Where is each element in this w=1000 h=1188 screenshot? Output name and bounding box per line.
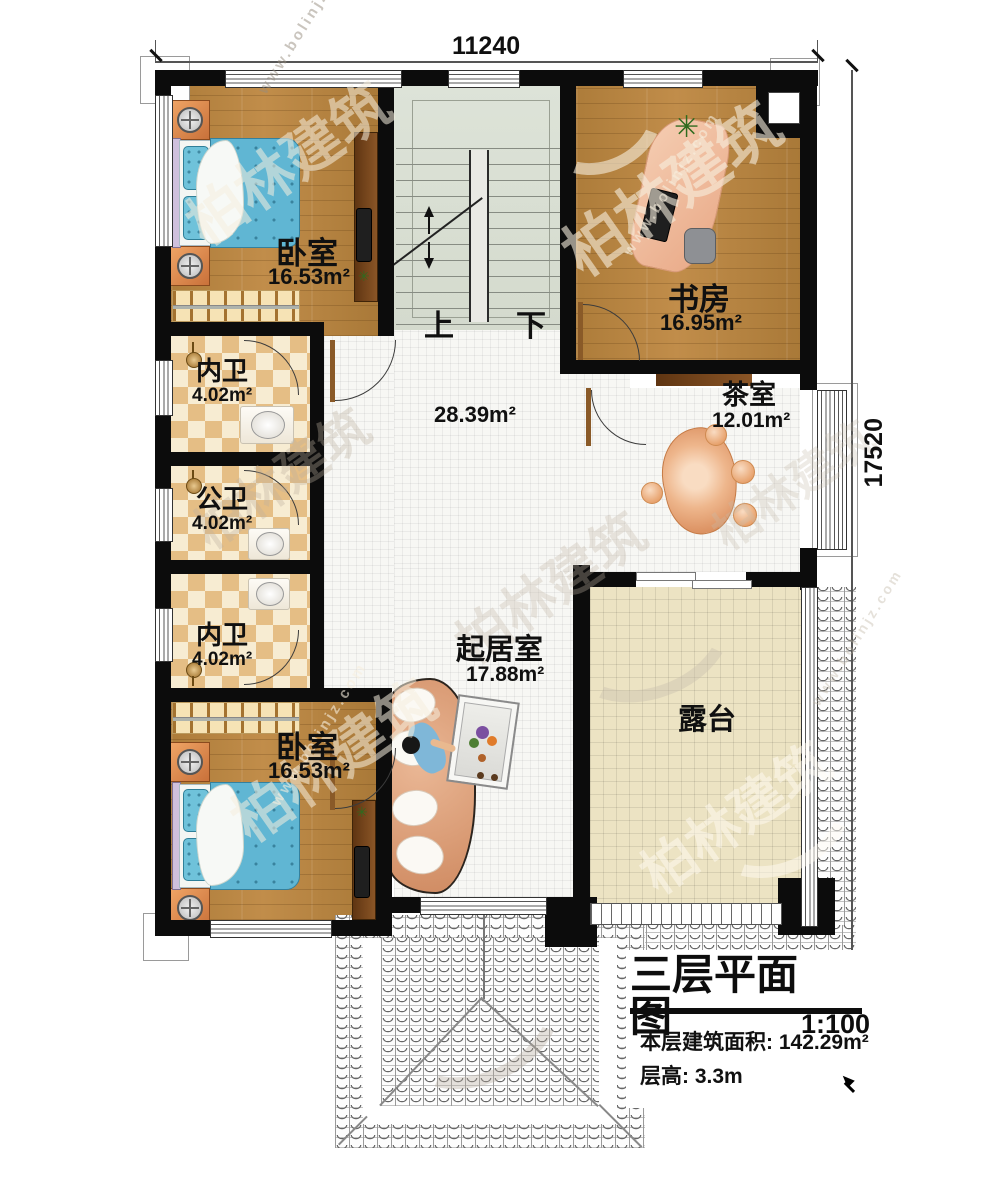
- room-area-bath-bottom: 4.02m²: [192, 650, 252, 669]
- roof-ridge-line: [483, 915, 485, 999]
- room-label-bath-bottom: 内卫: [196, 622, 248, 648]
- sliding-door-panel: [636, 572, 696, 581]
- room-label-bath-top: 内卫: [196, 358, 248, 384]
- wall-segment: [376, 688, 392, 936]
- stair-railing: [469, 150, 489, 322]
- wall-segment: [155, 452, 324, 466]
- room-label-tea: 茶室: [722, 382, 776, 409]
- room-label-terrace: 露台: [678, 706, 736, 735]
- sink-basin: [251, 411, 285, 439]
- wall-segment: [310, 322, 324, 702]
- stool: [733, 503, 757, 527]
- window: [155, 608, 173, 662]
- window: [448, 70, 520, 88]
- wall-segment: [560, 360, 817, 374]
- room-label-bath-middle: 公卫: [196, 486, 248, 512]
- room-label-living: 起居室: [456, 636, 543, 665]
- sink: [248, 528, 290, 560]
- lamp-icon: [177, 253, 203, 279]
- stair-down-label: 下: [516, 312, 546, 342]
- floor-height-label: 层高:: [640, 1065, 689, 1088]
- monitor-icon: [356, 208, 372, 262]
- title-block: 三层平面图1:100 本层建筑面积: 142.29m² 层高: 3.3m: [626, 950, 870, 1108]
- stair-arrow-stem: [428, 242, 430, 258]
- window: [155, 95, 173, 247]
- dimension-top-label: 11240: [452, 34, 520, 59]
- window: [155, 360, 173, 416]
- window: [623, 70, 703, 88]
- flowers: [469, 738, 479, 748]
- plant-icon: ✳: [356, 804, 368, 821]
- wall-segment: [573, 565, 590, 905]
- stool: [731, 460, 755, 484]
- dimension-line-right: [851, 70, 853, 1086]
- wall-segment: [155, 688, 392, 702]
- window: [225, 70, 402, 88]
- shower-stem: [192, 676, 194, 686]
- sink-basin: [256, 582, 284, 606]
- sink-basin: [256, 532, 284, 556]
- title-underline: [630, 1008, 862, 1014]
- chair: [684, 228, 716, 264]
- cursor-arrow: [840, 1074, 860, 1094]
- flowers: [478, 754, 486, 762]
- room-area-bath-middle: 4.02m²: [192, 514, 252, 533]
- terrace-floor: [590, 587, 801, 925]
- table-item: [477, 772, 484, 779]
- flue-inner: [768, 92, 800, 124]
- monitor-icon: [354, 846, 370, 898]
- floor-area-label: 本层建筑面积:: [640, 1031, 773, 1054]
- terrace-parapet: [801, 587, 818, 927]
- floor-area-value: 142.29m²: [779, 1031, 869, 1054]
- floor-area-line: 本层建筑面积: 142.29m²: [640, 1026, 869, 1056]
- wall-segment: [560, 70, 576, 374]
- nightstand: [170, 742, 210, 782]
- hall-floor: [394, 330, 560, 572]
- floor-plan: 上 下 ✳ ✳ ✳: [0, 0, 1000, 1188]
- room-area-bath-top: 4.02m²: [192, 386, 252, 405]
- wall-segment: [155, 322, 324, 336]
- sink: [240, 406, 294, 444]
- stair-arrow-stem: [428, 216, 430, 234]
- bed: [172, 782, 298, 888]
- person-head: [402, 736, 420, 754]
- nightstand: [170, 100, 210, 140]
- room-area-living: 17.88m²: [466, 664, 544, 685]
- plant-icon: ✳: [358, 268, 370, 285]
- hall-area-label: 28.39m²: [434, 404, 516, 426]
- window: [155, 488, 173, 542]
- bed-blanket: [196, 784, 244, 886]
- bed: [172, 138, 298, 246]
- stair-arrow-down-icon: [424, 258, 434, 269]
- room-area-tea: 12.01m²: [712, 410, 790, 431]
- table-item: [491, 774, 498, 781]
- nightstand: [170, 246, 210, 286]
- lamp-icon: [177, 107, 203, 133]
- wall-segment: [746, 572, 817, 587]
- terrace-railing: [590, 903, 782, 925]
- dimension-right-label: 17520: [862, 418, 887, 488]
- lamp-icon: [177, 749, 203, 775]
- floor-height-value: 3.3m: [695, 1065, 743, 1088]
- closet-rail: [173, 305, 299, 309]
- closet-rail: [173, 717, 299, 721]
- stair-up-label: 上: [424, 312, 454, 342]
- floor-height-line: 层高: 3.3m: [640, 1060, 743, 1090]
- sink: [248, 578, 290, 610]
- closet: [172, 290, 300, 322]
- wall-segment: [378, 70, 394, 336]
- door-leaf: [586, 388, 591, 446]
- dimension-line-top: [155, 61, 818, 63]
- bay-window: [817, 390, 847, 550]
- room-area-bedroom-top: 16.53m²: [268, 266, 350, 288]
- wall-segment: [392, 897, 420, 913]
- roof-inner-tiles: [381, 938, 599, 1106]
- wall-segment: [155, 560, 324, 574]
- window: [420, 897, 547, 915]
- plant-icon: ✳: [674, 110, 699, 145]
- stool: [641, 482, 663, 504]
- sliding-door-panel: [692, 580, 752, 589]
- wall-segment: [590, 572, 636, 587]
- room-area-study: 16.95m²: [660, 312, 742, 334]
- lamp-icon: [177, 895, 203, 921]
- bed-blanket: [196, 140, 244, 244]
- flowers: [487, 736, 497, 746]
- window: [210, 920, 332, 938]
- room-area-bedroom-bottom: 16.53m²: [268, 760, 350, 782]
